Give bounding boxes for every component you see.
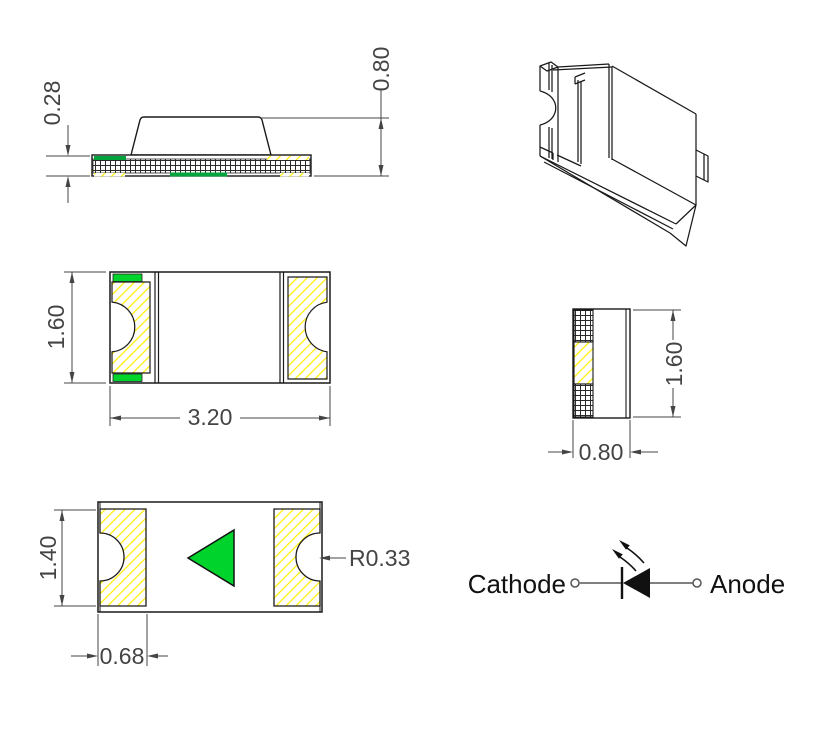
cathode-mark-strip-top-left	[94, 156, 126, 160]
iso-anode-terminal-tab	[696, 150, 708, 182]
dim-label-side-height: 0.80	[368, 47, 394, 92]
dim-label-bottom-pad-width: 0.68	[100, 643, 145, 669]
end-terminal-plating-top	[574, 310, 593, 342]
arrowhead	[110, 416, 121, 421]
end-view: 1.60 0.80	[548, 309, 687, 465]
arrowhead	[562, 450, 573, 455]
dim-side-thickness	[46, 125, 90, 203]
arrowhead	[70, 372, 75, 383]
end-terminal-solder-mid	[574, 342, 593, 384]
iso-bottom-silhouette	[540, 156, 670, 233]
iso-flange-step	[575, 73, 585, 84]
iso-bottom-right-tip	[670, 205, 696, 246]
light-emission-arrows	[612, 540, 644, 571]
iso-body-left-edges	[609, 64, 612, 160]
substrate-metallization-grid	[93, 159, 310, 173]
dim-label-notch-radius: R0.33	[349, 545, 410, 571]
dim-top-height	[64, 272, 106, 383]
end-terminal-plating-bottom	[574, 384, 593, 417]
arrowhead	[379, 165, 384, 176]
polarity-schematic: Cathode Anode	[468, 540, 786, 599]
iso-cap-inner-edges-lower	[549, 127, 552, 159]
led-diode-triangle	[623, 568, 650, 598]
solder-strip-bottom-right	[280, 173, 309, 177]
arrowhead	[671, 310, 676, 321]
arrowhead	[379, 118, 384, 129]
cathode-mark-top	[113, 274, 142, 282]
dim-notch-radius: R0.33	[319, 545, 410, 571]
arrowhead	[630, 450, 641, 455]
iso-bottom-right-wedge	[676, 205, 696, 224]
arrowhead	[60, 510, 65, 521]
isometric-view	[540, 62, 708, 246]
solder-strip-bottom-left	[94, 173, 125, 177]
dim-label-end-height: 1.60	[661, 342, 687, 387]
arrowhead	[60, 595, 65, 606]
arrowhead	[87, 654, 98, 659]
arrowhead	[70, 272, 75, 283]
iso-flange-edges	[578, 80, 581, 164]
anode-terminal-circle	[693, 579, 701, 587]
anode-label: Anode	[710, 569, 785, 599]
side-view: 0.28 0.80	[39, 47, 394, 203]
arrowhead	[66, 145, 71, 156]
iso-body-top-edge	[612, 66, 696, 114]
iso-bottom-rail-mid	[544, 162, 673, 229]
die-pad-strip-bottom-center	[170, 173, 227, 177]
iso-bottom-rail-top	[546, 159, 676, 224]
dim-label-bottom-pad-height: 1.40	[35, 536, 61, 581]
solder-strip-top-right	[267, 156, 309, 160]
iso-cap-bottom-tab	[540, 147, 553, 160]
cathode-mark-bottom	[113, 374, 142, 382]
arrowhead	[319, 416, 330, 421]
cathode-terminal-circle	[571, 579, 579, 587]
dim-label-end-width: 0.80	[579, 439, 624, 465]
top-view: 1.60 3.20	[43, 272, 330, 430]
dim-label-top-height: 1.60	[43, 305, 69, 350]
lens-profile	[131, 117, 271, 155]
iso-castellation-notch	[540, 91, 556, 125]
dim-label-side-thickness: 0.28	[39, 81, 65, 126]
iso-top-edges	[553, 64, 612, 70]
light-arrow-tail	[627, 548, 644, 563]
drawing-svg: 0.28 0.80	[0, 0, 834, 734]
dim-label-top-width: 3.20	[188, 404, 233, 430]
arrowhead	[66, 176, 71, 187]
bottom-view: 1.40 0.68 R0.33	[35, 502, 410, 669]
arrowhead	[147, 654, 158, 659]
datasheet-mechanical-drawing: 0.28 0.80	[0, 0, 834, 734]
cathode-label: Cathode	[468, 569, 566, 599]
arrowhead	[671, 406, 676, 417]
